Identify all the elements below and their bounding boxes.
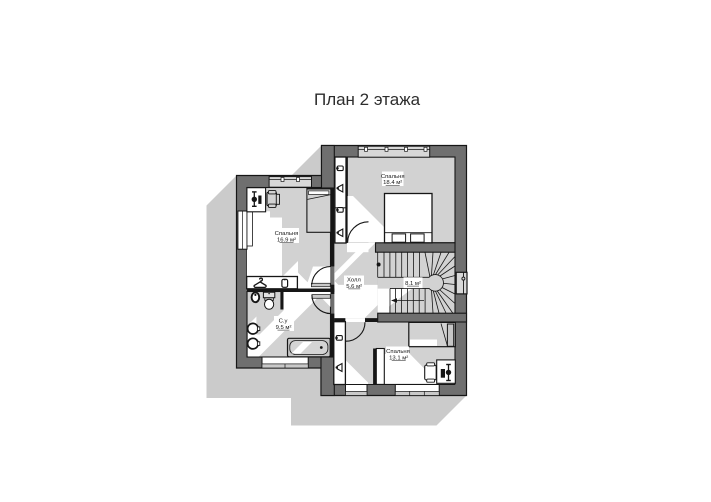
svg-text:План 2 этажа: План 2 этажа xyxy=(314,90,421,109)
svg-text:Холл: Холл xyxy=(347,278,361,284)
svg-text:Спальня: Спальня xyxy=(275,231,299,237)
svg-text:С.у: С.у xyxy=(279,319,288,325)
svg-text:Спальня: Спальня xyxy=(381,174,405,180)
svg-text:Спальня: Спальня xyxy=(386,349,410,355)
